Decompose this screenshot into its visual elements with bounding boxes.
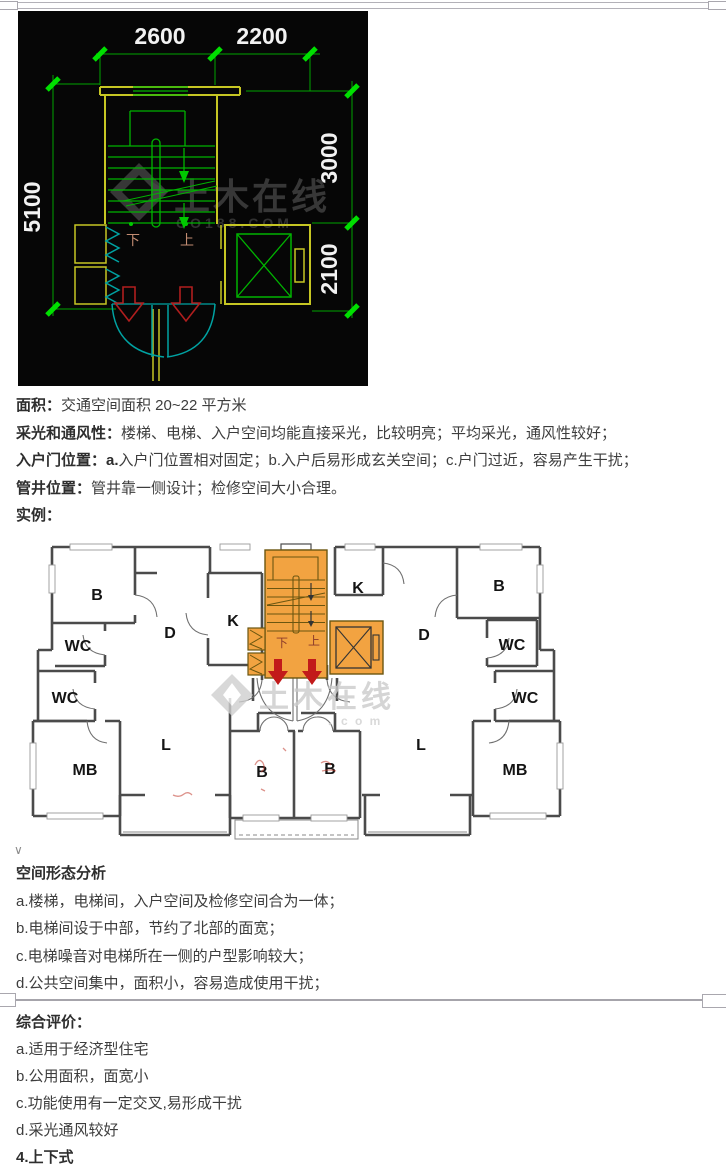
page-break-top: [0, 0, 726, 10]
room-label-mb: MB: [73, 762, 98, 779]
room-label-l: L: [416, 737, 426, 754]
dim-5100: 5100: [19, 181, 45, 232]
intro-line: 采光和通风性：楼梯、电梯、入户空间均能直接采光，比较明亮；平均采光，通风性较好；: [16, 420, 718, 448]
analysis-section: 空间形态分析 a.楼梯，电梯间，入户空间及检修空间合为一体； b.电梯间设于中部…: [16, 860, 718, 998]
evaluation-title: 综合评价：: [16, 1009, 718, 1036]
room-label-d: D: [164, 625, 176, 642]
evaluation-item: d.采光通风较好: [16, 1117, 718, 1144]
dim-2100: 2100: [316, 243, 342, 294]
room-label-b: B: [256, 764, 268, 781]
plan-watermark-domain: ．c o m: [327, 714, 382, 728]
room-label-wc: WC: [65, 638, 92, 655]
evaluation-item: c.功能使用有一定交叉,易形成干扰: [16, 1090, 718, 1117]
analysis-item: b.电梯间设于中部，节约了北部的面宽；: [16, 915, 718, 943]
intro-label: 面积：: [16, 397, 61, 414]
intro-label: 采光和通风性：: [16, 425, 121, 442]
dim-2600: 2600: [134, 23, 185, 49]
analysis-item: a.楼梯，电梯间，入户空间及检修空间合为一体；: [16, 888, 718, 916]
intro-body: 入户门位置相对固定；b.入户后易形成玄关空间；c.户门过近，容易产生干扰；: [119, 452, 638, 469]
divider-end-mark: [0, 1, 18, 10]
divider-line: [0, 2, 726, 3]
intro-line: 实例：: [16, 502, 718, 530]
evaluation-section: 综合评价： a.适用于经济型住宅 b.公用面积，面宽小 c.功能使用有一定交叉,…: [16, 1009, 718, 1171]
room-label-b: B: [91, 587, 103, 604]
room-label-wc: WC: [512, 690, 539, 707]
intro-body: 管井靠一侧设计；检修空间大小合理。: [91, 480, 346, 497]
analysis-title: 空间形态分析: [16, 860, 718, 888]
room-label-k: K: [227, 613, 239, 630]
divider-line: [0, 8, 726, 9]
next-section-heading: 4.上下式: [16, 1144, 718, 1171]
cad-stair-core-figure[interactable]: 土木在线 CO188.COM 2600 2200 5100 3000 2100: [18, 11, 368, 386]
floor-plan-figure[interactable]: 下 上 土木在线 ．c o m B WC WC MB D K L B B K B…: [25, 543, 565, 853]
room-label-l: L: [161, 737, 171, 754]
dim-2200: 2200: [236, 23, 287, 49]
intro-body: 交通空间面积 20~22 平方米: [61, 397, 246, 414]
plan-watermark-title: 土木在线: [259, 681, 395, 714]
room-label-b: B: [493, 578, 505, 595]
dim-3000: 3000: [316, 132, 342, 183]
divider-end-mark: [0, 993, 16, 1007]
intro-label: 入户门位置：a.: [16, 452, 119, 469]
intro-body: 楼梯、电梯、入户空间均能直接采光，比较明亮；平均采光，通风性较好；: [121, 425, 616, 442]
cad-watermark-title: 土木在线: [174, 176, 330, 217]
anchor-caret-mark: ∨: [14, 843, 23, 857]
intro-label: 实例：: [16, 507, 61, 524]
divider-end-mark: [708, 1, 726, 10]
room-label-d: D: [418, 627, 430, 644]
cad-label-up: 上: [180, 232, 194, 248]
intro-line: 面积：交通空间面积 20~22 平方米: [16, 392, 718, 420]
room-label-wc: WC: [499, 637, 526, 654]
intro-line: 管井位置：管井靠一侧设计；检修空间大小合理。: [16, 475, 718, 503]
cad-label-down: 下: [126, 232, 140, 248]
plan-label-up: 上: [308, 634, 320, 648]
plan-label-down: 下: [276, 636, 288, 650]
room-label-k: K: [352, 580, 364, 597]
divider-end-mark: [702, 994, 726, 1008]
evaluation-item: a.适用于经济型住宅: [16, 1036, 718, 1063]
room-label-mb: MB: [503, 762, 528, 779]
document-page: 土木在线 CO188.COM 2600 2200 5100 3000 2100: [0, 0, 726, 1173]
intro-label: 管井位置：: [16, 480, 91, 497]
elevator: [330, 621, 383, 674]
intro-text: 面积：交通空间面积 20~22 平方米 采光和通风性：楼梯、电梯、入户空间均能直…: [16, 392, 718, 530]
intro-line: 入户门位置：a.入户门位置相对固定；b.入户后易形成玄关空间；c.户门过近，容易…: [16, 447, 718, 475]
room-label-wc: WC: [52, 690, 79, 707]
divider-line: [0, 999, 726, 1001]
analysis-item: c.电梯噪音对电梯所在一侧的户型影响较大；: [16, 943, 718, 971]
evaluation-item: b.公用面积，面宽小: [16, 1063, 718, 1090]
page-break-mid: [0, 991, 726, 1009]
